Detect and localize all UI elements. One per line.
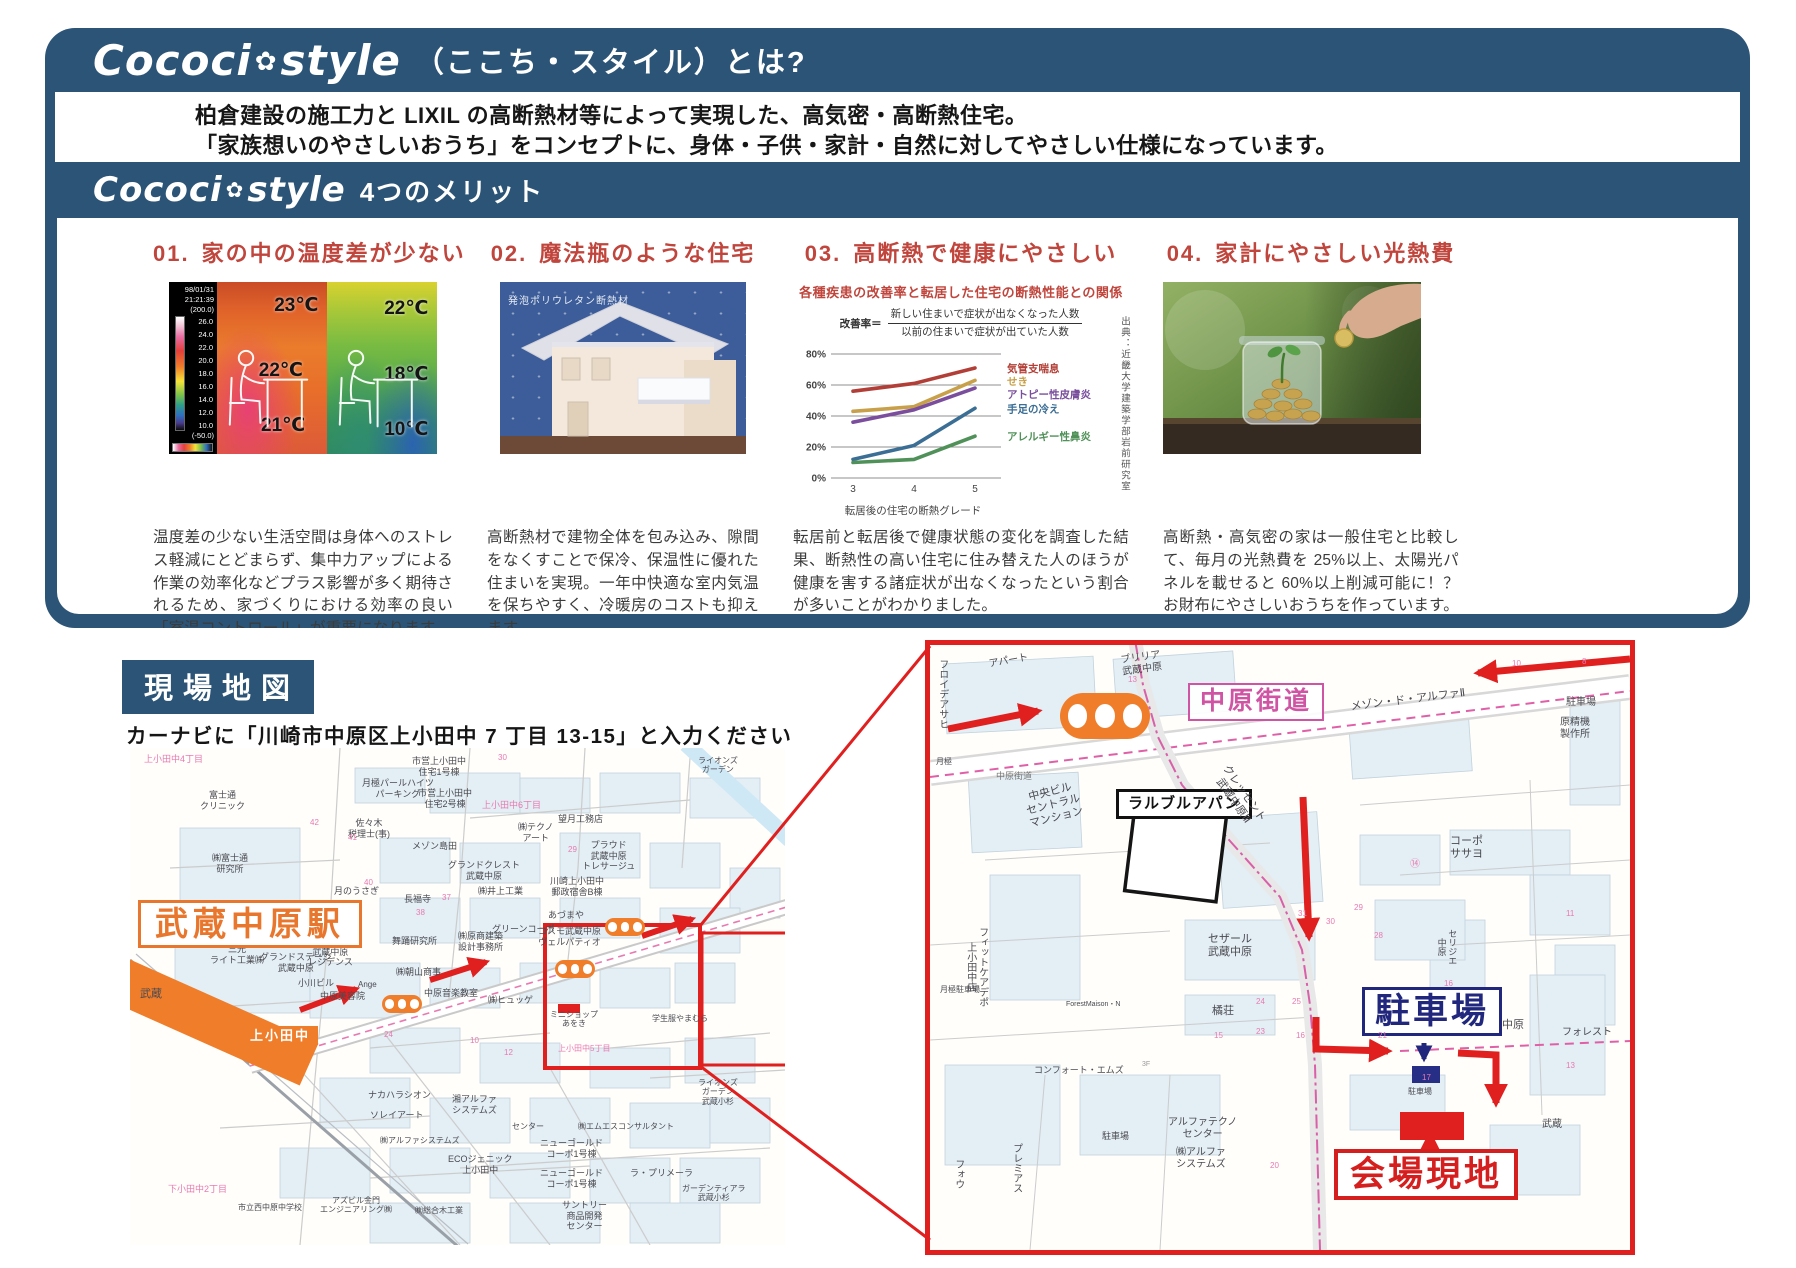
map-label: アズビル金門エンジニアリング㈱ — [320, 1196, 392, 1215]
map-label: Ange — [358, 980, 377, 989]
map-label: 10 — [470, 1036, 479, 1045]
map-label: 中原美容院 — [320, 991, 365, 1002]
map-label: 駐車場 — [1102, 1131, 1129, 1142]
thermal-scale-values: 26.024.022.020.018.016.014.012.010.0 — [185, 316, 214, 431]
map-label: ㈱アルファシステムズ — [1176, 1147, 1226, 1171]
merit-04: 04.家計にやさしい光熱費 — [1163, 230, 1459, 614]
map-label: 29 — [1354, 903, 1363, 912]
map-label: 橘荘 — [1212, 1005, 1234, 1018]
map-label: 武蔵 — [1542, 1119, 1562, 1131]
map-label: 市営上小田中住宅1号棟 — [412, 756, 466, 777]
map-label: ソレイアート — [370, 1110, 423, 1121]
map-label: 24 — [1256, 997, 1265, 1006]
wide-area-map: 上小田中4丁目ライオンズガーデン富士通クリニック㈱富士通研究所月極パールハイツパ… — [130, 748, 785, 1245]
map-label: 湘アルファシステムズ — [452, 1094, 497, 1115]
map-label: ㈱井上工業 — [478, 886, 523, 897]
header-title-suffix: （ここち・スタイル）とは? — [415, 39, 807, 81]
svg-text:アトピー性皮膚炎: アトピー性皮膚炎 — [1007, 388, 1091, 401]
intro-line-1: 柏倉建設の施工力と LIXIL の高断熱材等によって実現した、高気密・高断熱住宅… — [195, 101, 1720, 131]
map-label: 市営上小田中住宅2号棟 — [418, 788, 472, 809]
station-icon — [555, 960, 595, 978]
merit-02-figure: 発泡ポリウレタン断熱材 — [487, 282, 759, 527]
panel-header-what-is: Cococi✿style （ここち・スタイル）とは? — [45, 28, 1750, 92]
map-label: 30 — [1326, 917, 1335, 926]
map-label: 28 — [1374, 931, 1383, 940]
thermal-scale-value: 10.0 — [185, 421, 213, 431]
map-label: あづまや — [548, 910, 584, 921]
thermal-mini-scale — [172, 443, 213, 452]
thermal-warm-room: 23℃ 22℃ 21℃ — [217, 282, 327, 454]
nakahara-kaido-label: 中原街道 — [1188, 683, 1324, 721]
merit-02-title-text: 魔法瓶のような住宅 — [539, 241, 755, 266]
map-label: ガーデンティアラ武蔵小杉 — [682, 1184, 746, 1203]
merit-04-text: 高断熱・高気密の家は一般住宅と比較して、毎月の光熱費を 25%以上、太陽光パネル… — [1163, 527, 1459, 618]
map-label: フォウ — [952, 1159, 964, 1189]
formula-fraction: 新しい住まいで症状が出なくなった人数 以前の住まいで症状が出ていた人数 — [888, 307, 1083, 340]
merits-title: 4つのメリット — [360, 172, 544, 209]
thermal-range-top: (200.0) — [171, 305, 214, 315]
map-label: ナカハラシオン — [368, 1090, 431, 1101]
station-icon — [605, 918, 645, 936]
map-label: 3F — [1142, 1061, 1150, 1069]
map-label: 20 — [1270, 1161, 1279, 1170]
map-label: 10 — [1512, 659, 1521, 668]
cococi-style-panel: Cococi✿style （ここち・スタイル）とは? 柏倉建設の施工力と LIX… — [45, 28, 1750, 628]
house-drawing — [500, 282, 746, 454]
merit-03-text: 転居前と転居後で健康状態の変化を調査した結果、断熱性の高い住宅に住み替えた人のほ… — [793, 527, 1129, 618]
map-label: ㈱原商建築設計事務所 — [458, 931, 503, 952]
map-label: 下小田中2丁目 — [168, 1184, 227, 1195]
map-label: ㈱朝山商事 — [396, 967, 441, 978]
merit-04-number: 04. — [1167, 241, 1204, 266]
temp-label: 23℃ — [274, 294, 318, 317]
map-label: 25 — [1292, 997, 1301, 1006]
map-label: 小川ビル — [298, 978, 334, 989]
map-label: ラ・プリメーラ — [630, 1168, 693, 1179]
svg-text:40%: 40% — [806, 412, 826, 423]
map-label: 武蔵 — [140, 988, 162, 1001]
map-label: 上小田中5丁目 — [558, 1044, 610, 1053]
map-label: ㈱アルファシステムズ — [380, 1136, 460, 1145]
map-label: セザール武蔵中原 — [1208, 933, 1252, 959]
map-label: 13 — [1128, 675, 1137, 684]
map-label: 舞踊研究所 — [392, 936, 437, 947]
map-label: 長福寺 — [404, 894, 431, 905]
map-label: 学生服やまむら — [652, 1014, 708, 1023]
map-label: ライオンズガーデン — [698, 756, 738, 775]
thermal-range-bottom: (-50.0) — [171, 431, 214, 441]
thermal-scale-value: 26.0 — [185, 317, 213, 327]
merit-01-text: 温度差の少ない生活空間は身体へのストレス軽減にとどまらず、集中力アップによる作業… — [153, 527, 453, 628]
merit-01-figure: 98/01/31 21:21:39 (200.0) 26.024.022.020… — [153, 282, 453, 527]
merit-01: 01.家の中の温度差が少ない 98/01/31 21:21:39 (200.0)… — [153, 230, 453, 614]
map-label: プラウド武蔵中原トレサージュ — [582, 840, 635, 872]
map-label: アルファテクノセンター — [1168, 1117, 1237, 1141]
person-outline-drawing — [219, 325, 318, 452]
merit-02-title: 02.魔法瓶のような住宅 — [487, 236, 759, 268]
thermal-scale-value: 22.0 — [185, 343, 213, 353]
map-label: 29 — [568, 845, 577, 854]
map-label: 駐車場 — [1566, 697, 1596, 709]
map-label: センター — [512, 1122, 544, 1131]
map-label: 24 — [384, 1030, 393, 1039]
merit-03-title: 03.高断熱で健康にやさしい — [793, 236, 1129, 268]
map-label: メゾン島田 — [412, 841, 457, 852]
map-label: 41 — [348, 833, 357, 842]
map-label: 23 — [1256, 1027, 1265, 1036]
map-label: 40 — [364, 878, 373, 887]
merits-row: 01.家の中の温度差が少ない 98/01/31 21:21:39 (200.0)… — [57, 218, 1738, 614]
temp-label: 22℃ — [384, 297, 428, 320]
map-label: フロイデアサヒ — [936, 659, 948, 729]
parking-big-label: 駐車場 — [1362, 987, 1502, 1036]
map-label: 月のうさぎ — [334, 886, 379, 897]
thermal-scale-panel: 98/01/31 21:21:39 (200.0) 26.024.022.020… — [169, 282, 217, 454]
thermal-scale-body: 26.024.022.020.018.016.014.012.010.0 — [171, 316, 214, 431]
merit-04-title: 04.家計にやさしい光熱費 — [1163, 236, 1459, 268]
savings-photo — [1163, 282, 1421, 454]
svg-text:気管支喘息: 気管支喘息 — [1006, 362, 1060, 375]
map-label: 11 — [1566, 909, 1574, 918]
map-label: 37 — [442, 893, 451, 902]
site-map-title: 現場地図 — [122, 660, 314, 714]
svg-text:80%: 80% — [806, 350, 826, 361]
svg-text:アレルギー性鼻炎: アレルギー性鼻炎 — [1007, 431, 1091, 444]
map-label: 原精機製作所 — [1560, 717, 1590, 741]
map-label: ライオンズガーデン武蔵小杉 — [698, 1078, 738, 1106]
map-label: 16 — [1296, 1031, 1305, 1040]
merit-02-number: 02. — [491, 241, 528, 266]
map-label: プレミアス — [1010, 1143, 1022, 1193]
cococi-style-logo-small: Cococi✿style — [93, 170, 346, 210]
map-label: コンフォート・エムズ — [1034, 1065, 1124, 1076]
map-label: サントリー商品開発センター — [562, 1200, 607, 1232]
svg-text:4: 4 — [911, 484, 917, 495]
svg-text:3: 3 — [850, 484, 856, 495]
thermal-color-bar — [175, 316, 185, 431]
map-label: グランドステージ武蔵中原 — [260, 952, 332, 973]
map-label: ニューゴールドコーポ1号棟 — [540, 1168, 603, 1189]
car-navi-instruction: カーナビに「川崎市中原区上小田中 7 丁目 13-15」と入力ください — [126, 719, 792, 749]
map-label: 上小田中6丁目 — [482, 800, 541, 811]
map-label: 望月工務店 — [558, 814, 603, 825]
person-outline-drawing — [329, 325, 428, 452]
merit-03-title-text: 高断熱で健康にやさしい — [853, 241, 1117, 266]
chart-source-credit: 出典：近畿大学建築学部岩前研究室 — [1117, 316, 1131, 492]
detail-map-drawing — [930, 645, 1630, 1250]
map-label: グランドクレスト武蔵中原 — [448, 860, 520, 881]
map-label: ForestMaison・N — [1066, 1001, 1120, 1009]
map-label: フィットケアデポ上小田中店 — [964, 927, 988, 1007]
merit-04-figure — [1163, 282, 1459, 527]
map-label: ニューゴールドコーポ1号棟 — [540, 1138, 603, 1159]
map-label: 17 — [1422, 1073, 1431, 1082]
thermal-date: 98/01/31 — [171, 285, 214, 295]
flower-icon: ✿ — [255, 47, 278, 77]
map-label: ㈱エムエスコンサルタント — [578, 1122, 674, 1131]
thermal-time: 21:21:39 — [171, 295, 214, 305]
thermal-scale-value: 20.0 — [185, 356, 213, 366]
map-label: 富士通クリニック — [200, 790, 245, 811]
svg-text:20%: 20% — [806, 443, 826, 454]
map-label: 川崎上小田中郵政宿舎B棟 — [550, 876, 604, 897]
svg-text:5: 5 — [972, 484, 978, 495]
logo-text-left: Cococi — [93, 170, 223, 210]
map-label: 31 — [1298, 909, 1307, 918]
flyer-page: Cococi✿style （ここち・スタイル）とは? 柏倉建設の施工力と LIX… — [0, 0, 1796, 1268]
station-icon — [1060, 693, 1150, 739]
map-label: 42 — [310, 818, 319, 827]
map-label: 21 — [1378, 1031, 1387, 1040]
health-improvement-line-chart: 0%20%40%60%80%345気管支喘息せきアトピー性皮膚炎手足の冷えアレル… — [793, 342, 1105, 500]
venue-label: 会場現地 — [1334, 1149, 1518, 1200]
logo-text-right: style — [247, 170, 345, 210]
kamiodanaka-label: 上小田中 — [242, 1026, 318, 1045]
map-label: ㈱富士通研究所 — [212, 853, 248, 874]
map-label: ミニショップあをき — [550, 1010, 598, 1029]
improvement-rate-formula: 改善率＝ 新しい住まいで症状が出なくなった人数 以前の住まいで症状が出ていた人数 — [793, 307, 1129, 340]
map-label: ECOジェニック上小田中 — [448, 1154, 513, 1175]
merit-01-number: 01. — [153, 241, 190, 266]
merit-03-number: 03. — [805, 241, 842, 266]
map-label: コーポササヨ — [1450, 835, 1483, 861]
panel-header-merits: Cococi✿style 4つのメリット — [45, 162, 1750, 218]
logo-text-left: Cococi — [93, 36, 252, 85]
intro-line-2: 「家族想いのやさしいおうち」をコンセプトに、身体・子供・家計・自然に対してやさし… — [195, 131, 1720, 161]
map-label: 15 — [1214, 1031, 1223, 1040]
map-label: 12 — [504, 1048, 513, 1057]
merit-04-title-text: 家計にやさしい光熱費 — [1215, 241, 1455, 266]
merit-03-figure: 各種疾患の改善率と転居した住宅の断熱性能との関係 改善率＝ 新しい住まいで症状が… — [793, 282, 1129, 527]
chart-x-axis-label: 転居後の住宅の断熱グレード — [793, 503, 1033, 518]
map-label: 8 — [1582, 657, 1586, 666]
map-label: ⑭ — [1410, 859, 1420, 871]
chart-title: 各種疾患の改善率と転居した住宅の断熱性能との関係 — [793, 282, 1129, 301]
svg-text:0%: 0% — [812, 474, 827, 485]
map-label: 13 — [1566, 1061, 1575, 1070]
map-label: 中原街道 — [996, 771, 1032, 782]
map-label: 上小田中4丁目 — [144, 754, 203, 765]
svg-text:せき: せき — [1007, 376, 1028, 388]
thermal-cool-room: 22℃ 18℃ 10℃ — [327, 282, 437, 454]
intro-block: 柏倉建設の施工力と LIXIL の高断熱材等によって実現した、高気密・高断熱住宅… — [55, 92, 1740, 162]
insulation-material-label: 発泡ポリウレタン断熱材 — [508, 292, 629, 307]
station-musashi-nakahara-label: 武蔵中原駅 — [138, 900, 362, 948]
map-label: 月極 — [936, 757, 952, 766]
map-label: ㈱総合木工業 — [415, 1206, 463, 1215]
svg-text:60%: 60% — [806, 381, 826, 392]
map-label: 30 — [498, 753, 507, 762]
merit-02: 02.魔法瓶のような住宅 — [487, 230, 759, 614]
merit-01-title-text: 家の中の温度差が少ない — [202, 241, 466, 266]
merit-03: 03.高断熱で健康にやさしい 各種疾患の改善率と転居した住宅の断熱性能との関係 … — [793, 230, 1129, 614]
thermal-scale-value: 16.0 — [185, 382, 213, 392]
map-label: フォレスト — [1562, 1027, 1612, 1039]
formula-denominator: 以前の住まいで症状が出ていた人数 — [888, 324, 1083, 340]
map-label: セリジエ中原 — [1436, 929, 1457, 965]
map-label: 38 — [416, 908, 425, 917]
formula-label: 改善率＝ — [840, 316, 882, 331]
merit-01-title: 01.家の中の温度差が少ない — [153, 236, 453, 268]
thermal-scale-value: 12.0 — [185, 408, 213, 418]
thermal-scale-value: 18.0 — [185, 369, 213, 379]
map-label: 中原音楽教室 — [424, 988, 478, 999]
merit-02-text: 高断熱材で建物全体を包み込み、隙間をなくすことで保冷、保温性に優れた住まいを実現… — [487, 527, 759, 628]
thermal-scale-value: 24.0 — [185, 330, 213, 340]
svg-text:手足の冷え: 手足の冷え — [1007, 403, 1060, 416]
map-label: 駐車場 — [1408, 1087, 1432, 1096]
thermal-image: 98/01/31 21:21:39 (200.0) 26.024.022.020… — [169, 282, 437, 454]
station-icon — [382, 995, 422, 1013]
map-label: 16 — [1444, 979, 1453, 988]
map-label: 市立西中原中学校 — [238, 1203, 302, 1212]
flower-icon: ✿ — [226, 177, 245, 202]
map-label: ㈱テクノアート — [518, 822, 553, 843]
insulated-house-image: 発泡ポリウレタン断熱材 — [500, 282, 746, 454]
map-label: ㈱ヒュッゲ — [488, 995, 533, 1006]
logo-text-right: style — [281, 36, 401, 85]
detail-map: フロイデアサヒ月極アパートブリリア武蔵中原中原街道中原街道ラルブルアパン中央ビル… — [925, 640, 1635, 1255]
formula-numerator: 新しい住まいで症状が出なくなった人数 — [888, 307, 1083, 324]
cococi-style-logo: Cococi✿style — [93, 36, 401, 85]
thermal-scale-value: 14.0 — [185, 395, 213, 405]
map-label: 中原 — [1502, 1019, 1524, 1032]
